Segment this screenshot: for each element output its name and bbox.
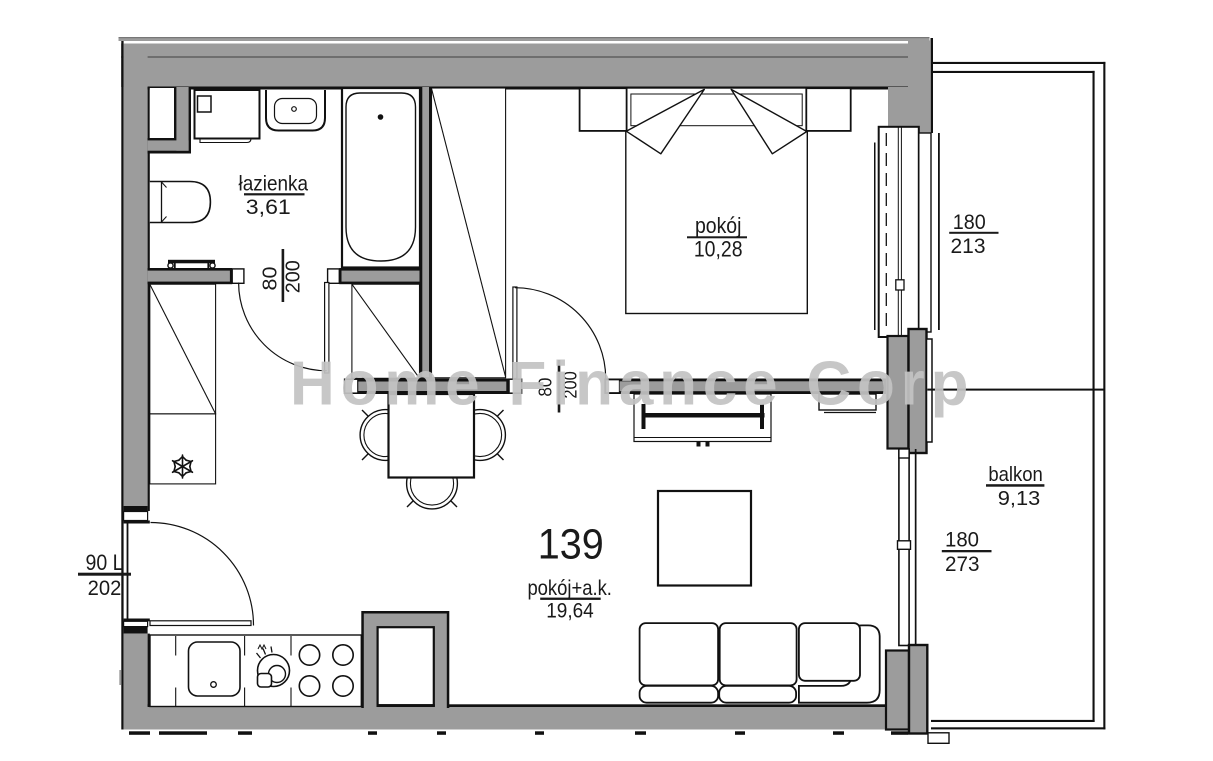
svg-text:łazienka: łazienka	[239, 172, 309, 196]
svg-text:213: 213	[951, 235, 986, 258]
svg-text:90 L: 90 L	[86, 550, 124, 575]
svg-text:9,13: 9,13	[998, 488, 1041, 510]
svg-text:balkon: balkon	[988, 464, 1043, 486]
svg-text:202: 202	[88, 576, 122, 600]
svg-text:Home Finance Corp: Home Finance Corp	[290, 350, 974, 419]
svg-text:139: 139	[538, 521, 604, 569]
svg-text:pokój: pokój	[695, 213, 742, 238]
svg-text:10,28: 10,28	[694, 236, 743, 261]
svg-text:180: 180	[945, 529, 979, 552]
svg-text:273: 273	[945, 553, 980, 576]
svg-text:19,64: 19,64	[546, 599, 594, 623]
svg-text:3,61: 3,61	[246, 195, 291, 219]
svg-text:200: 200	[282, 260, 305, 293]
svg-text:180: 180	[953, 211, 986, 234]
svg-text:pokój+a.k.: pokój+a.k.	[527, 577, 612, 600]
svg-text:80: 80	[259, 267, 282, 291]
